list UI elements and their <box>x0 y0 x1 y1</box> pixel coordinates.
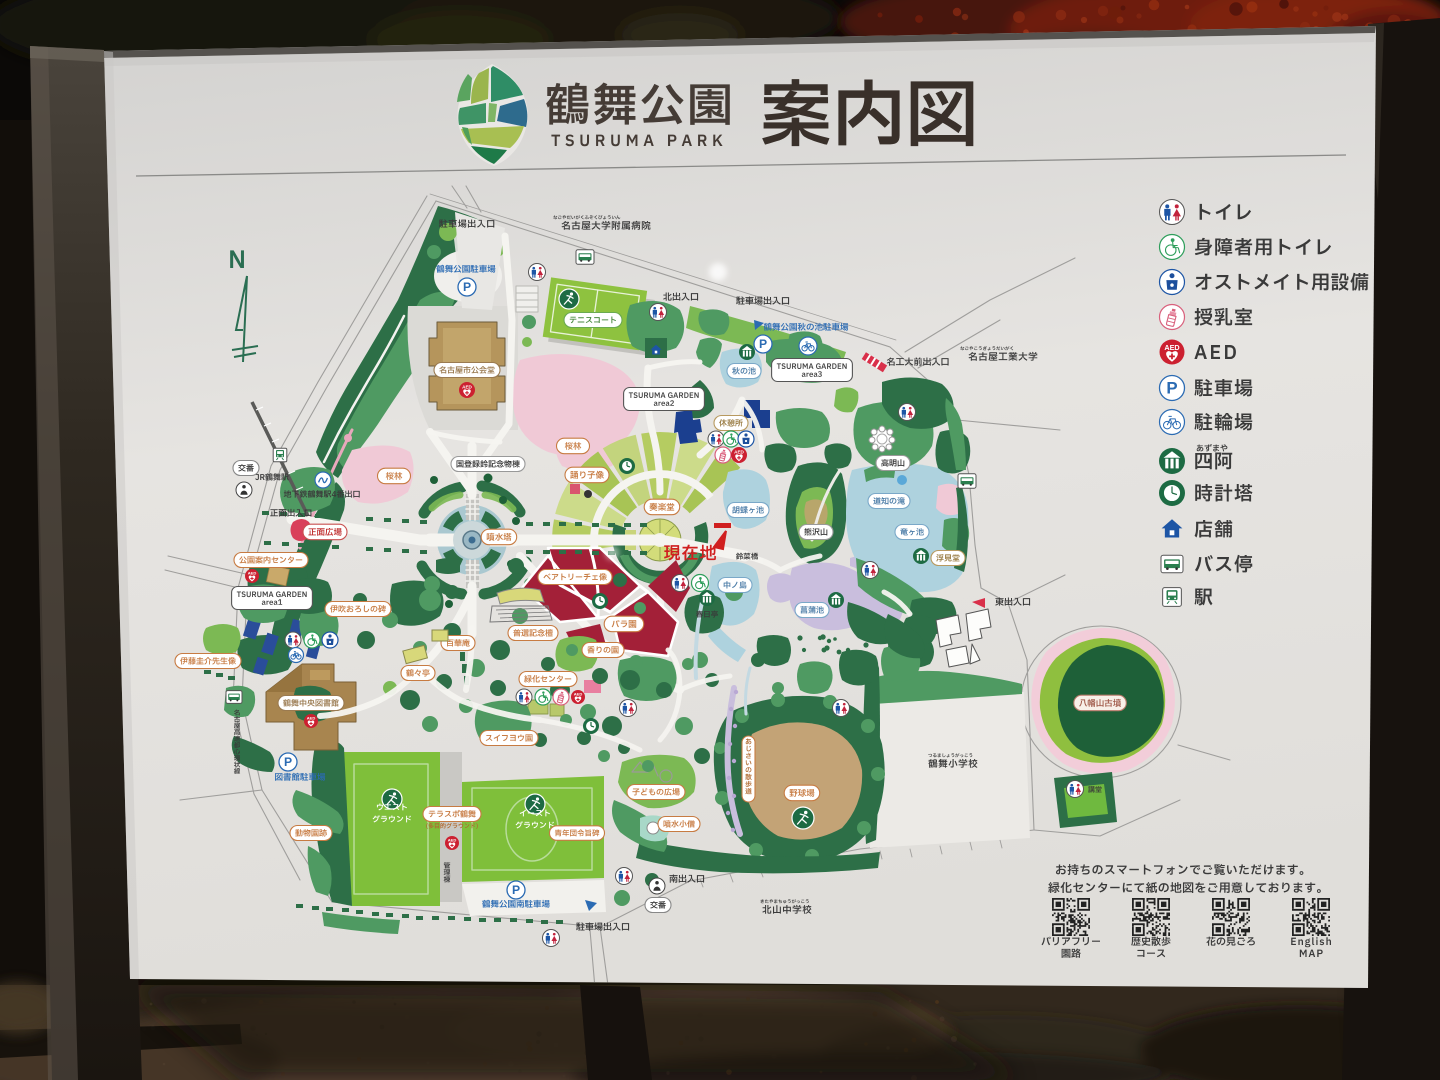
svg-text:AED: AED <box>448 838 457 843</box>
svg-text:AED: AED <box>1164 343 1179 352</box>
svg-text:AED: AED <box>248 571 257 576</box>
svg-text:P: P <box>759 337 767 351</box>
svg-text:AED: AED <box>307 716 316 721</box>
svg-text:AED: AED <box>734 450 744 455</box>
svg-text:P: P <box>463 280 471 294</box>
svg-text:P: P <box>284 755 292 769</box>
svg-text:P: P <box>1166 378 1177 397</box>
svg-text:P: P <box>512 883 520 897</box>
svg-text:AED: AED <box>462 385 472 390</box>
svg-text:AED: AED <box>574 692 583 697</box>
